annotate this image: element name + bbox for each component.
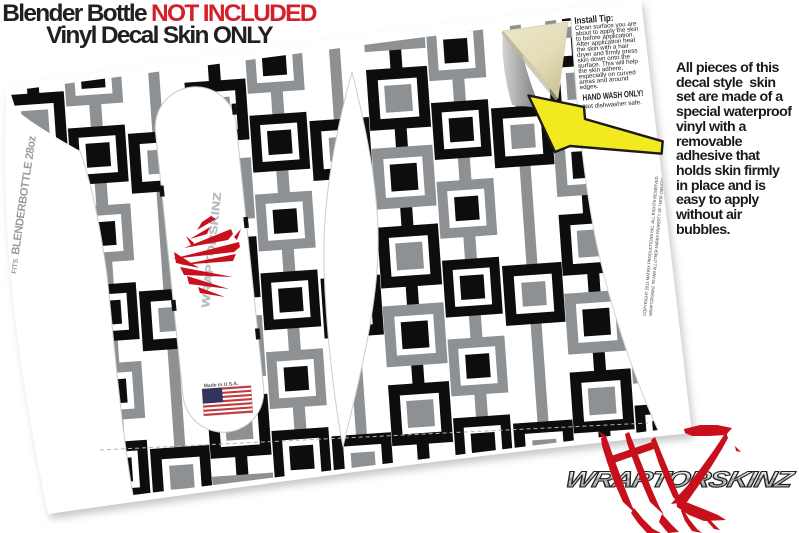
svg-text:WRAPTORSKINZ: WRAPTORSKINZ — [563, 466, 798, 492]
svg-text:edges.: edges. — [579, 83, 599, 91]
